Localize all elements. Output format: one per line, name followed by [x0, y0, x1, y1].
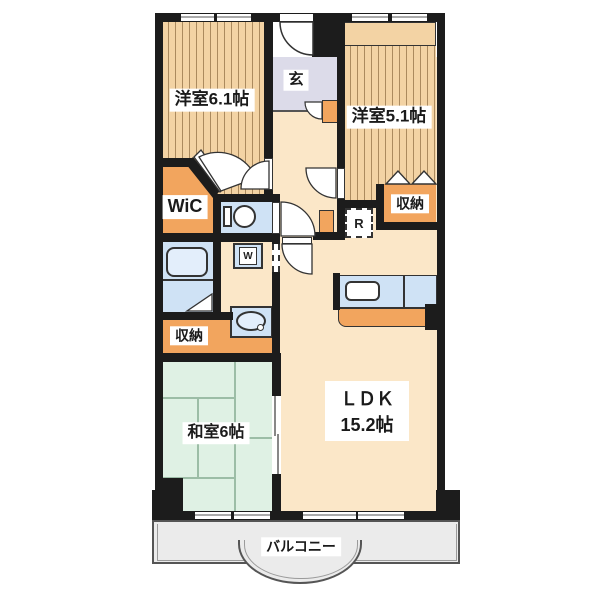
wall-segment [155, 353, 281, 362]
wall-segment [376, 222, 445, 230]
window [303, 512, 356, 519]
toilet-bowl [233, 205, 256, 228]
wall-pillar [152, 490, 176, 520]
toilet-tank [223, 206, 232, 227]
sliding-door [272, 396, 281, 474]
washing-machine-label: W [243, 251, 252, 262]
window [234, 512, 270, 519]
door-leaf [282, 237, 312, 244]
window [392, 14, 427, 21]
window [352, 14, 388, 21]
open-passage [272, 244, 280, 272]
room-label-japanese-room: 和室6帖 [183, 422, 250, 444]
entrance-door-opening [280, 14, 313, 21]
room-label-wic: WiC [163, 195, 208, 219]
door-leaf [337, 168, 345, 199]
wall-segment [213, 242, 221, 320]
wall-segment [213, 194, 280, 202]
wall-segment [155, 312, 233, 320]
wall-segment [425, 304, 445, 330]
wall-segment [155, 233, 280, 242]
door-leaf [272, 202, 280, 234]
entrance-door-arc [280, 22, 313, 55]
room-label-storage-lower: 収納 [170, 326, 208, 345]
wall-segment [312, 13, 340, 57]
refrigerator-label: R [354, 216, 363, 231]
refrigerator-space: R [345, 208, 373, 238]
wall-segment [313, 232, 345, 240]
door-leaf [264, 158, 273, 190]
room-label-west-room-1: 洋室6.1帖 [170, 89, 255, 112]
bathroom-divider [162, 279, 213, 281]
wall-left [155, 13, 163, 520]
window [217, 14, 251, 21]
ldk-name: ＬＤＫ [340, 385, 394, 411]
room-label-balcony: バルコニー [261, 537, 341, 556]
room-label-entrance: 玄 [283, 70, 308, 91]
window [195, 512, 231, 519]
washing-machine: W [239, 247, 257, 265]
wall-pillar [436, 490, 460, 520]
floor-plan: W R [0, 0, 600, 600]
washbasin-faucet [257, 324, 264, 331]
shoe-cabinet [322, 100, 338, 123]
bathtub [166, 247, 208, 277]
kitchen-counter-base [338, 308, 427, 327]
room-label-storage-upper: 収納 [391, 194, 429, 213]
window [181, 14, 214, 21]
wall-right [437, 13, 445, 520]
wall-segment [333, 273, 340, 310]
wall-segment [162, 158, 194, 167]
window [358, 512, 404, 519]
room-label-west-room-2: 洋室5.1帖 [347, 106, 432, 129]
ldk-size: 15.2帖 [340, 411, 393, 437]
kitchen-counter-divider [403, 275, 405, 308]
kitchen-sink [345, 281, 380, 301]
room-label-ldk: ＬＤＫ 15.2帖 [325, 381, 409, 441]
west-room-2-bay [344, 22, 436, 46]
